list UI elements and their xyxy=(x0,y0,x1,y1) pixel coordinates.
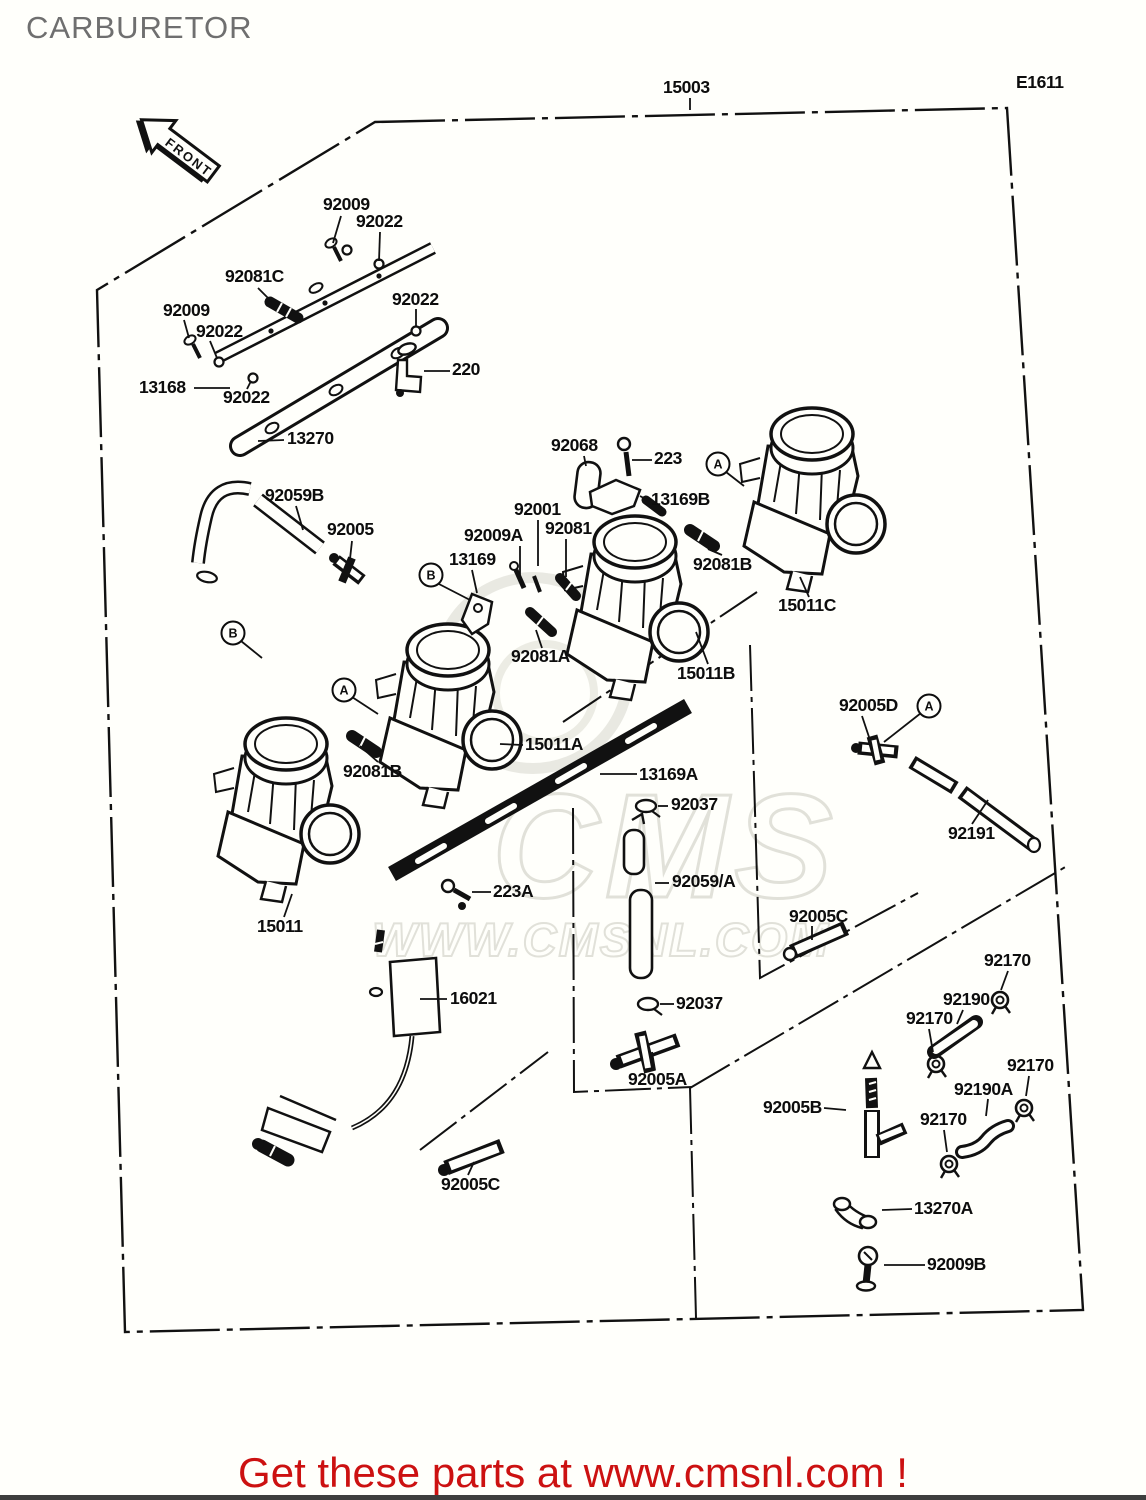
part-label-15011c: 15011C xyxy=(778,597,836,615)
part-label-92068: 92068 xyxy=(551,437,598,455)
parts-diagram-page: CARBURETOR CMS WWW.CMSNL.COM xyxy=(0,0,1146,1500)
part-label-13169a: 13169A xyxy=(639,766,698,784)
part-label-92081a: 92081A xyxy=(511,648,570,666)
part-label-15011: 15011 xyxy=(257,918,303,936)
part-label-92170: 92170 xyxy=(920,1111,967,1129)
part-label-92022: 92022 xyxy=(392,291,439,309)
labels-layer: 15003E1611920099202292081C92022920099202… xyxy=(0,0,1146,1500)
part-label-15011a: 15011A xyxy=(525,736,583,754)
part-label-92170: 92170 xyxy=(984,952,1031,970)
part-label-92009: 92009 xyxy=(163,302,210,320)
callout-circle-a: A xyxy=(917,694,942,719)
part-label-92081b: 92081B xyxy=(343,763,402,781)
part-label-92059b: 92059B xyxy=(265,487,324,505)
part-label-92170: 92170 xyxy=(1007,1057,1054,1075)
part-label-92081b: 92081B xyxy=(693,556,752,574)
part-label-13270a: 13270A xyxy=(914,1200,973,1218)
part-label-92022: 92022 xyxy=(356,213,403,231)
footer-promo-text: Get these parts at www.cmsnl.com ! xyxy=(0,1449,1146,1497)
part-label-92191: 92191 xyxy=(948,825,995,843)
callout-circle-a: A xyxy=(332,678,357,703)
assembly-number: 15003 xyxy=(663,79,710,97)
part-label-92081: 92081 xyxy=(545,520,592,538)
part-label-92009a: 92009A xyxy=(464,527,523,545)
bottom-edge-bar xyxy=(0,1495,1146,1500)
diagram-code: E1611 xyxy=(1016,74,1064,92)
part-label-13169b: 13169B xyxy=(651,491,710,509)
callout-circle-b: B xyxy=(221,621,246,646)
part-label-13270: 13270 xyxy=(287,430,334,448)
part-label-223: 223 xyxy=(654,450,682,468)
part-label-92022: 92022 xyxy=(196,323,243,341)
part-label-92005d: 92005D xyxy=(839,697,898,715)
part-label-92005b: 92005B xyxy=(763,1099,822,1117)
part-label-92190a: 92190A xyxy=(954,1081,1013,1099)
part-label-92022: 92022 xyxy=(223,389,270,407)
part-label-220: 220 xyxy=(452,361,480,379)
part-label-13169: 13169 xyxy=(449,551,496,569)
part-label-92005c: 92005C xyxy=(441,1176,500,1194)
part-label-92005a: 92005A xyxy=(628,1071,687,1089)
part-label-92190: 92190 xyxy=(943,991,990,1009)
part-label-16021: 16021 xyxy=(450,990,497,1008)
part-label-92059-a: 92059/A xyxy=(672,873,735,891)
part-label-223a: 223A xyxy=(493,883,533,901)
part-label-13168: 13168 xyxy=(139,379,186,397)
part-label-92005c: 92005C xyxy=(789,908,848,926)
part-label-92005: 92005 xyxy=(327,521,374,539)
part-label-92037: 92037 xyxy=(676,995,723,1013)
part-label-92009b: 92009B xyxy=(927,1256,986,1274)
callout-circle-b: B xyxy=(419,563,444,588)
part-label-92170: 92170 xyxy=(906,1010,953,1028)
callout-circle-a: A xyxy=(706,452,731,477)
part-label-92081c: 92081C xyxy=(225,268,284,286)
part-label-92037: 92037 xyxy=(671,796,718,814)
part-label-15011b: 15011B xyxy=(677,665,735,683)
part-label-92001: 92001 xyxy=(514,501,561,519)
